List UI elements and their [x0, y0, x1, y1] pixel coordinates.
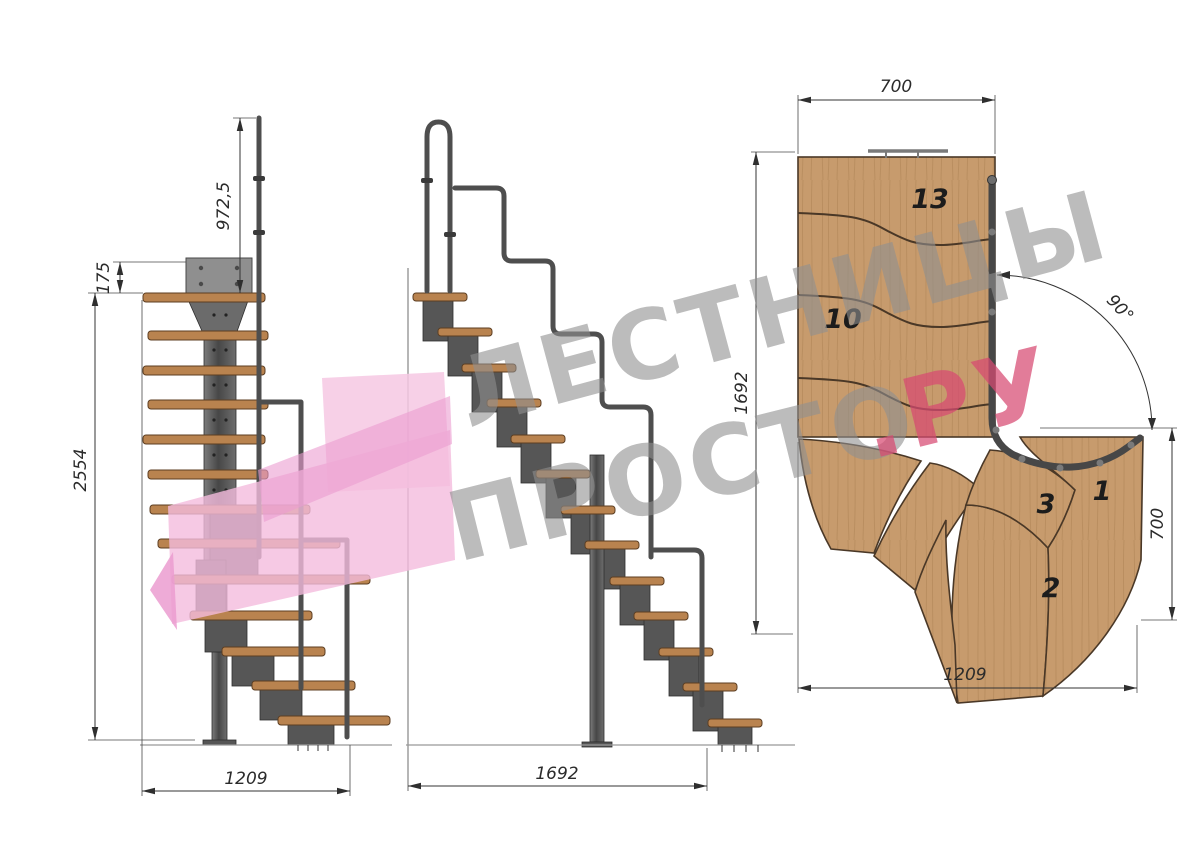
side-base-anchors: [722, 745, 758, 752]
dim-side-length: 1692: [535, 764, 578, 784]
dim-plan-top-width: 700: [880, 77, 912, 97]
dim-front-rail-height: 972,5: [214, 182, 234, 231]
logo-tip: [150, 552, 177, 630]
side-dimensions: 1692: [408, 748, 707, 791]
dim-front-width: 1209: [224, 769, 267, 789]
step-label-1: 1: [1093, 476, 1112, 507]
dim-plan-bottom-width: 1209: [943, 665, 986, 685]
step-label-3: 3: [1037, 489, 1056, 520]
step-label-2: 2: [1042, 573, 1061, 604]
dim-front-top-offset: 175: [94, 262, 114, 294]
front-top-mounting-plate: [186, 258, 252, 294]
front-base-anchors: [298, 745, 328, 751]
drawing-canvas: 2554 175 972,5 1209: [0, 0, 1200, 849]
dim-front-total-height: 2554: [71, 448, 91, 491]
staircase-drawing-sheet: 2554 175 972,5 1209: [0, 0, 1200, 849]
dim-plan-exit-width: 700: [1148, 508, 1168, 540]
